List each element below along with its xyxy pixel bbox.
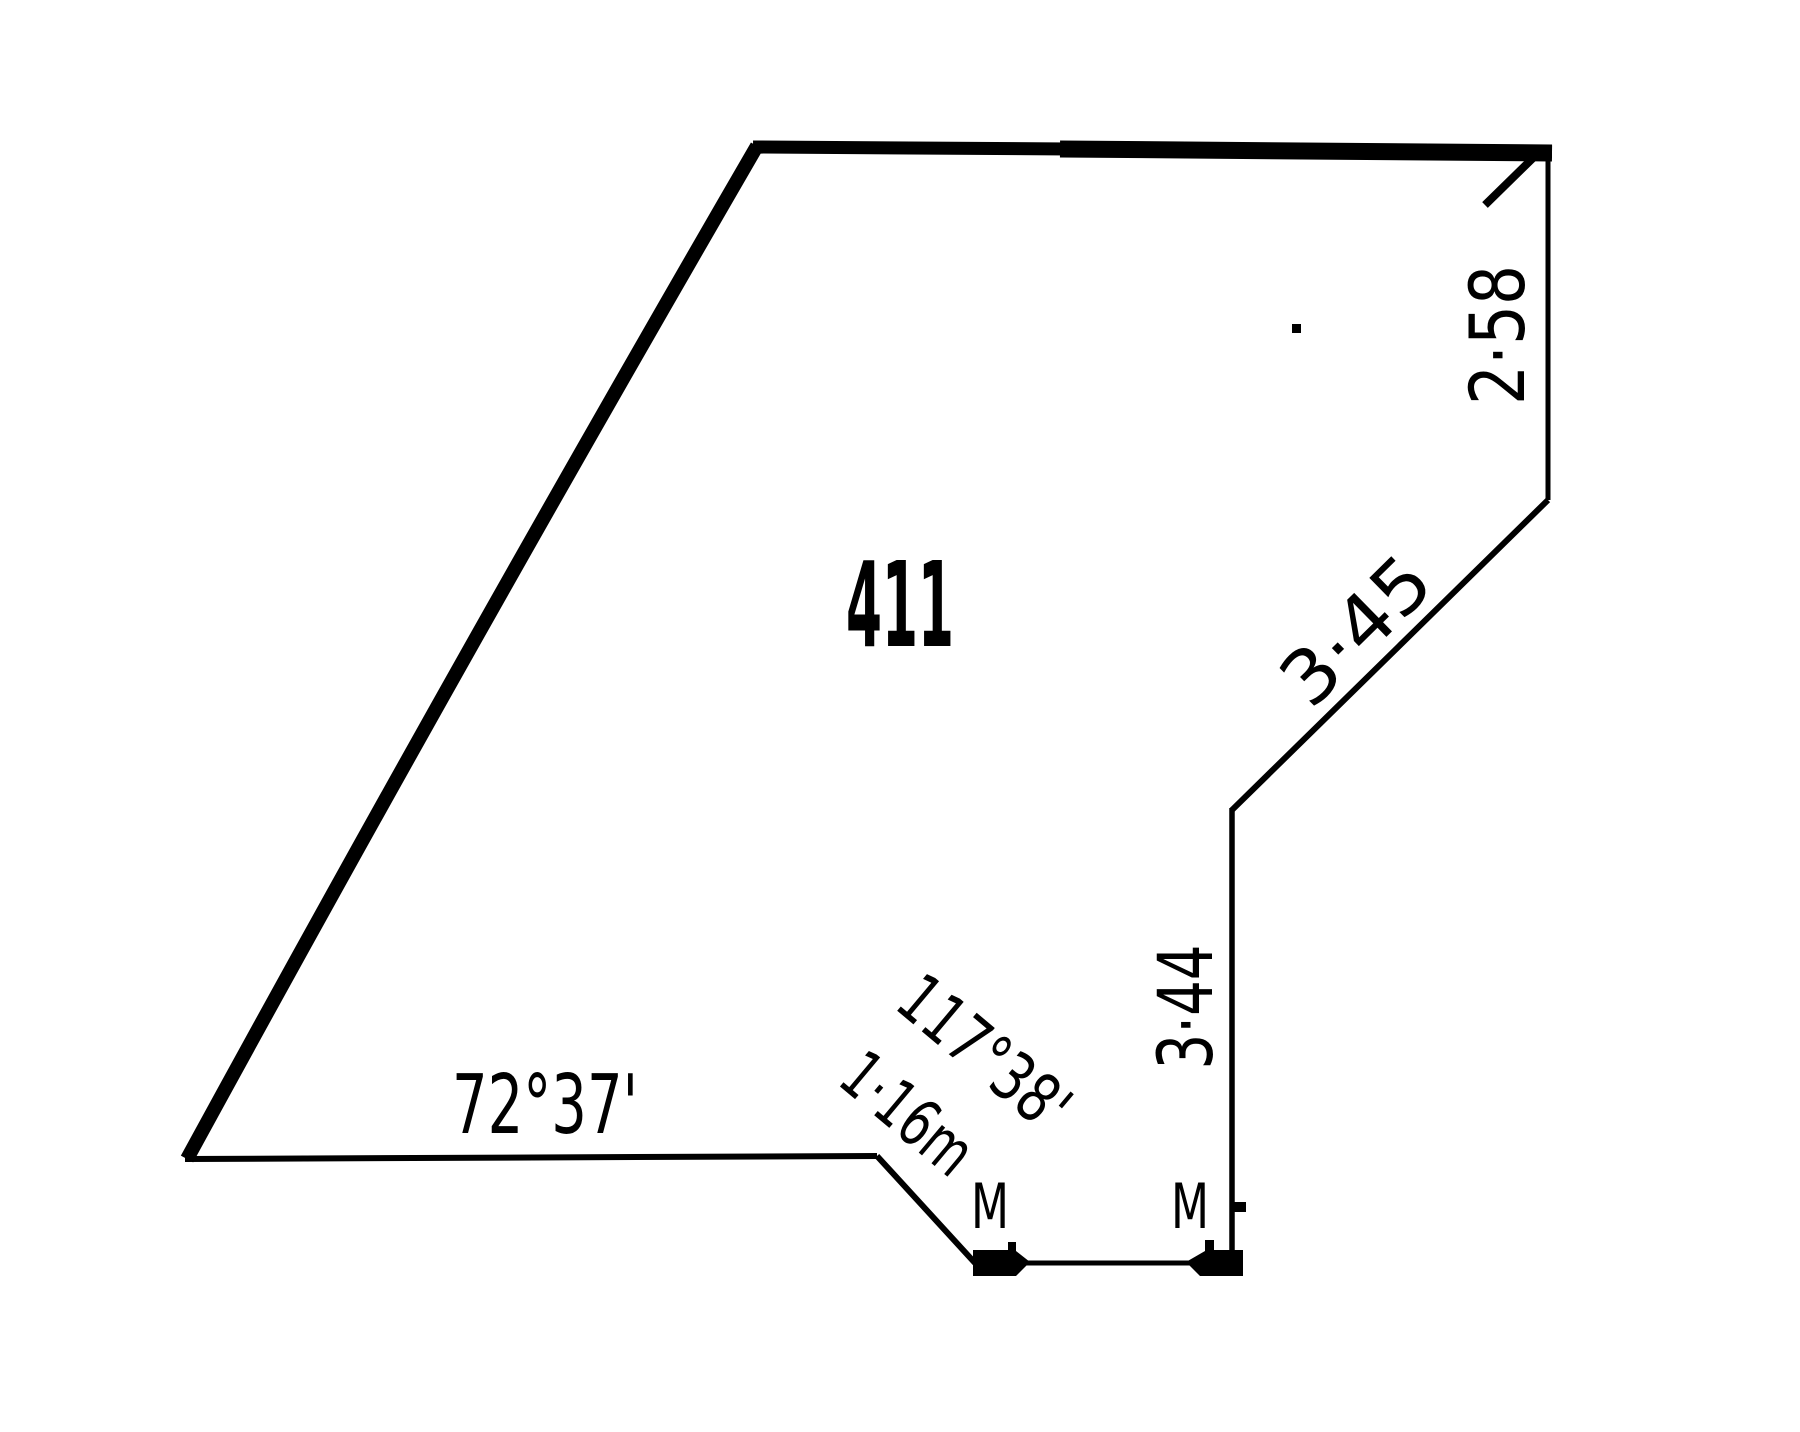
parcel-diagram: 411 72°37' 2·58 3·45 3·44 117°38' 1·16m … bbox=[0, 0, 1800, 1432]
survey-mark-label-right: M bbox=[1171, 1170, 1209, 1243]
corner-tick-mark bbox=[1485, 157, 1534, 205]
boundary-bottom-main bbox=[185, 1156, 877, 1159]
survey-mark-arrow-left bbox=[973, 1242, 1030, 1276]
east-upper-distance-label: 2·58 bbox=[1453, 265, 1542, 405]
boundary-top-overdraw bbox=[1060, 149, 1552, 153]
bottom-bearing-label: 72°37' bbox=[452, 1058, 638, 1153]
boundary-west bbox=[187, 146, 757, 1159]
lot-number-label: 411 bbox=[846, 536, 954, 674]
east-lower-distance-label: 3·44 bbox=[1141, 945, 1230, 1070]
survey-plan-page: 411 72°37' 2·58 3·45 3·44 117°38' 1·16m … bbox=[0, 0, 1800, 1432]
plan-labels: 411 72°37' 2·58 3·45 3·44 117°38' 1·16m … bbox=[452, 265, 1542, 1243]
ink-dot bbox=[1292, 324, 1301, 333]
survey-mark-label-left: M bbox=[971, 1170, 1009, 1243]
diagonal-distance-label: 3·45 bbox=[1263, 538, 1450, 723]
